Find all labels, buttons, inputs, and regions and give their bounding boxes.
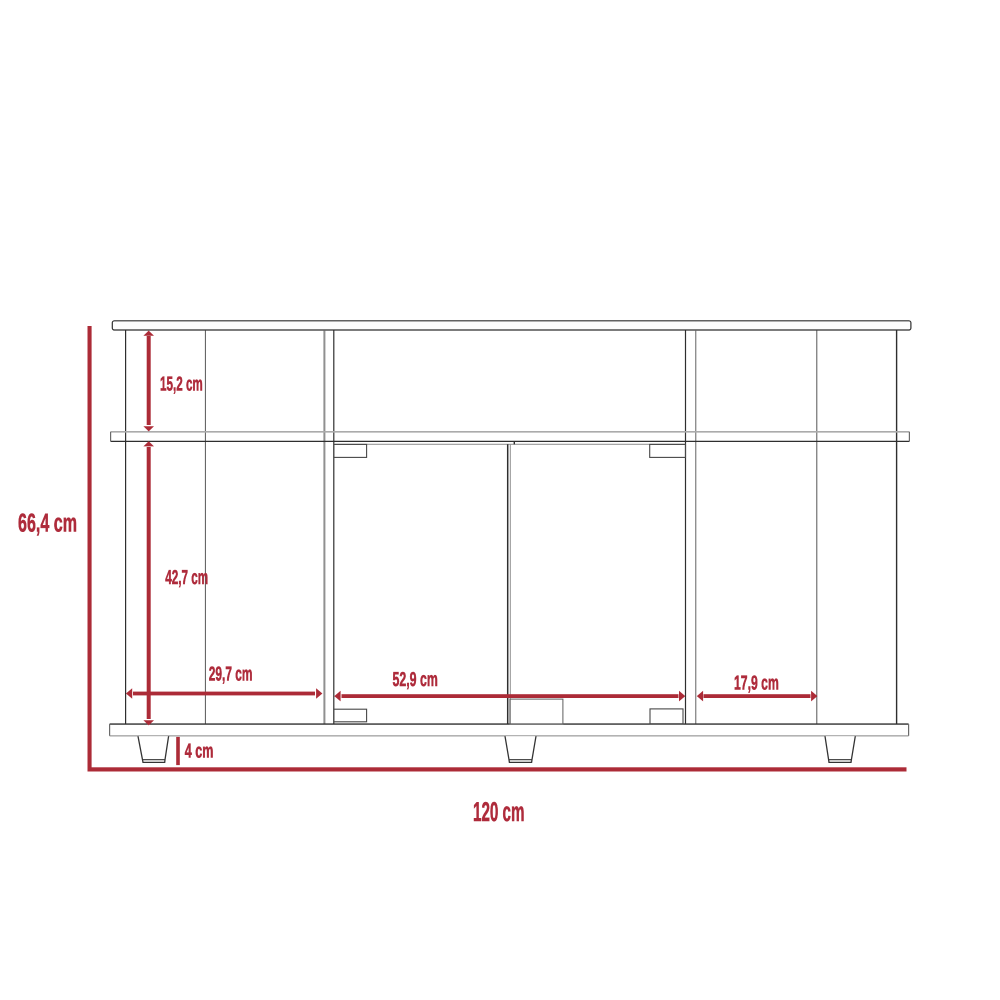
svg-text:4 cm: 4 cm (185, 740, 214, 762)
svg-text:42,7 cm: 42,7 cm (165, 567, 208, 589)
svg-text:17,9 cm: 17,9 cm (734, 672, 779, 694)
svg-text:15,2 cm: 15,2 cm (160, 373, 203, 395)
svg-text:52,9 cm: 52,9 cm (393, 669, 438, 691)
svg-text:66,4 cm: 66,4 cm (18, 509, 77, 537)
svg-text:120 cm: 120 cm (473, 796, 525, 827)
svg-text:29,7 cm: 29,7 cm (209, 664, 253, 686)
